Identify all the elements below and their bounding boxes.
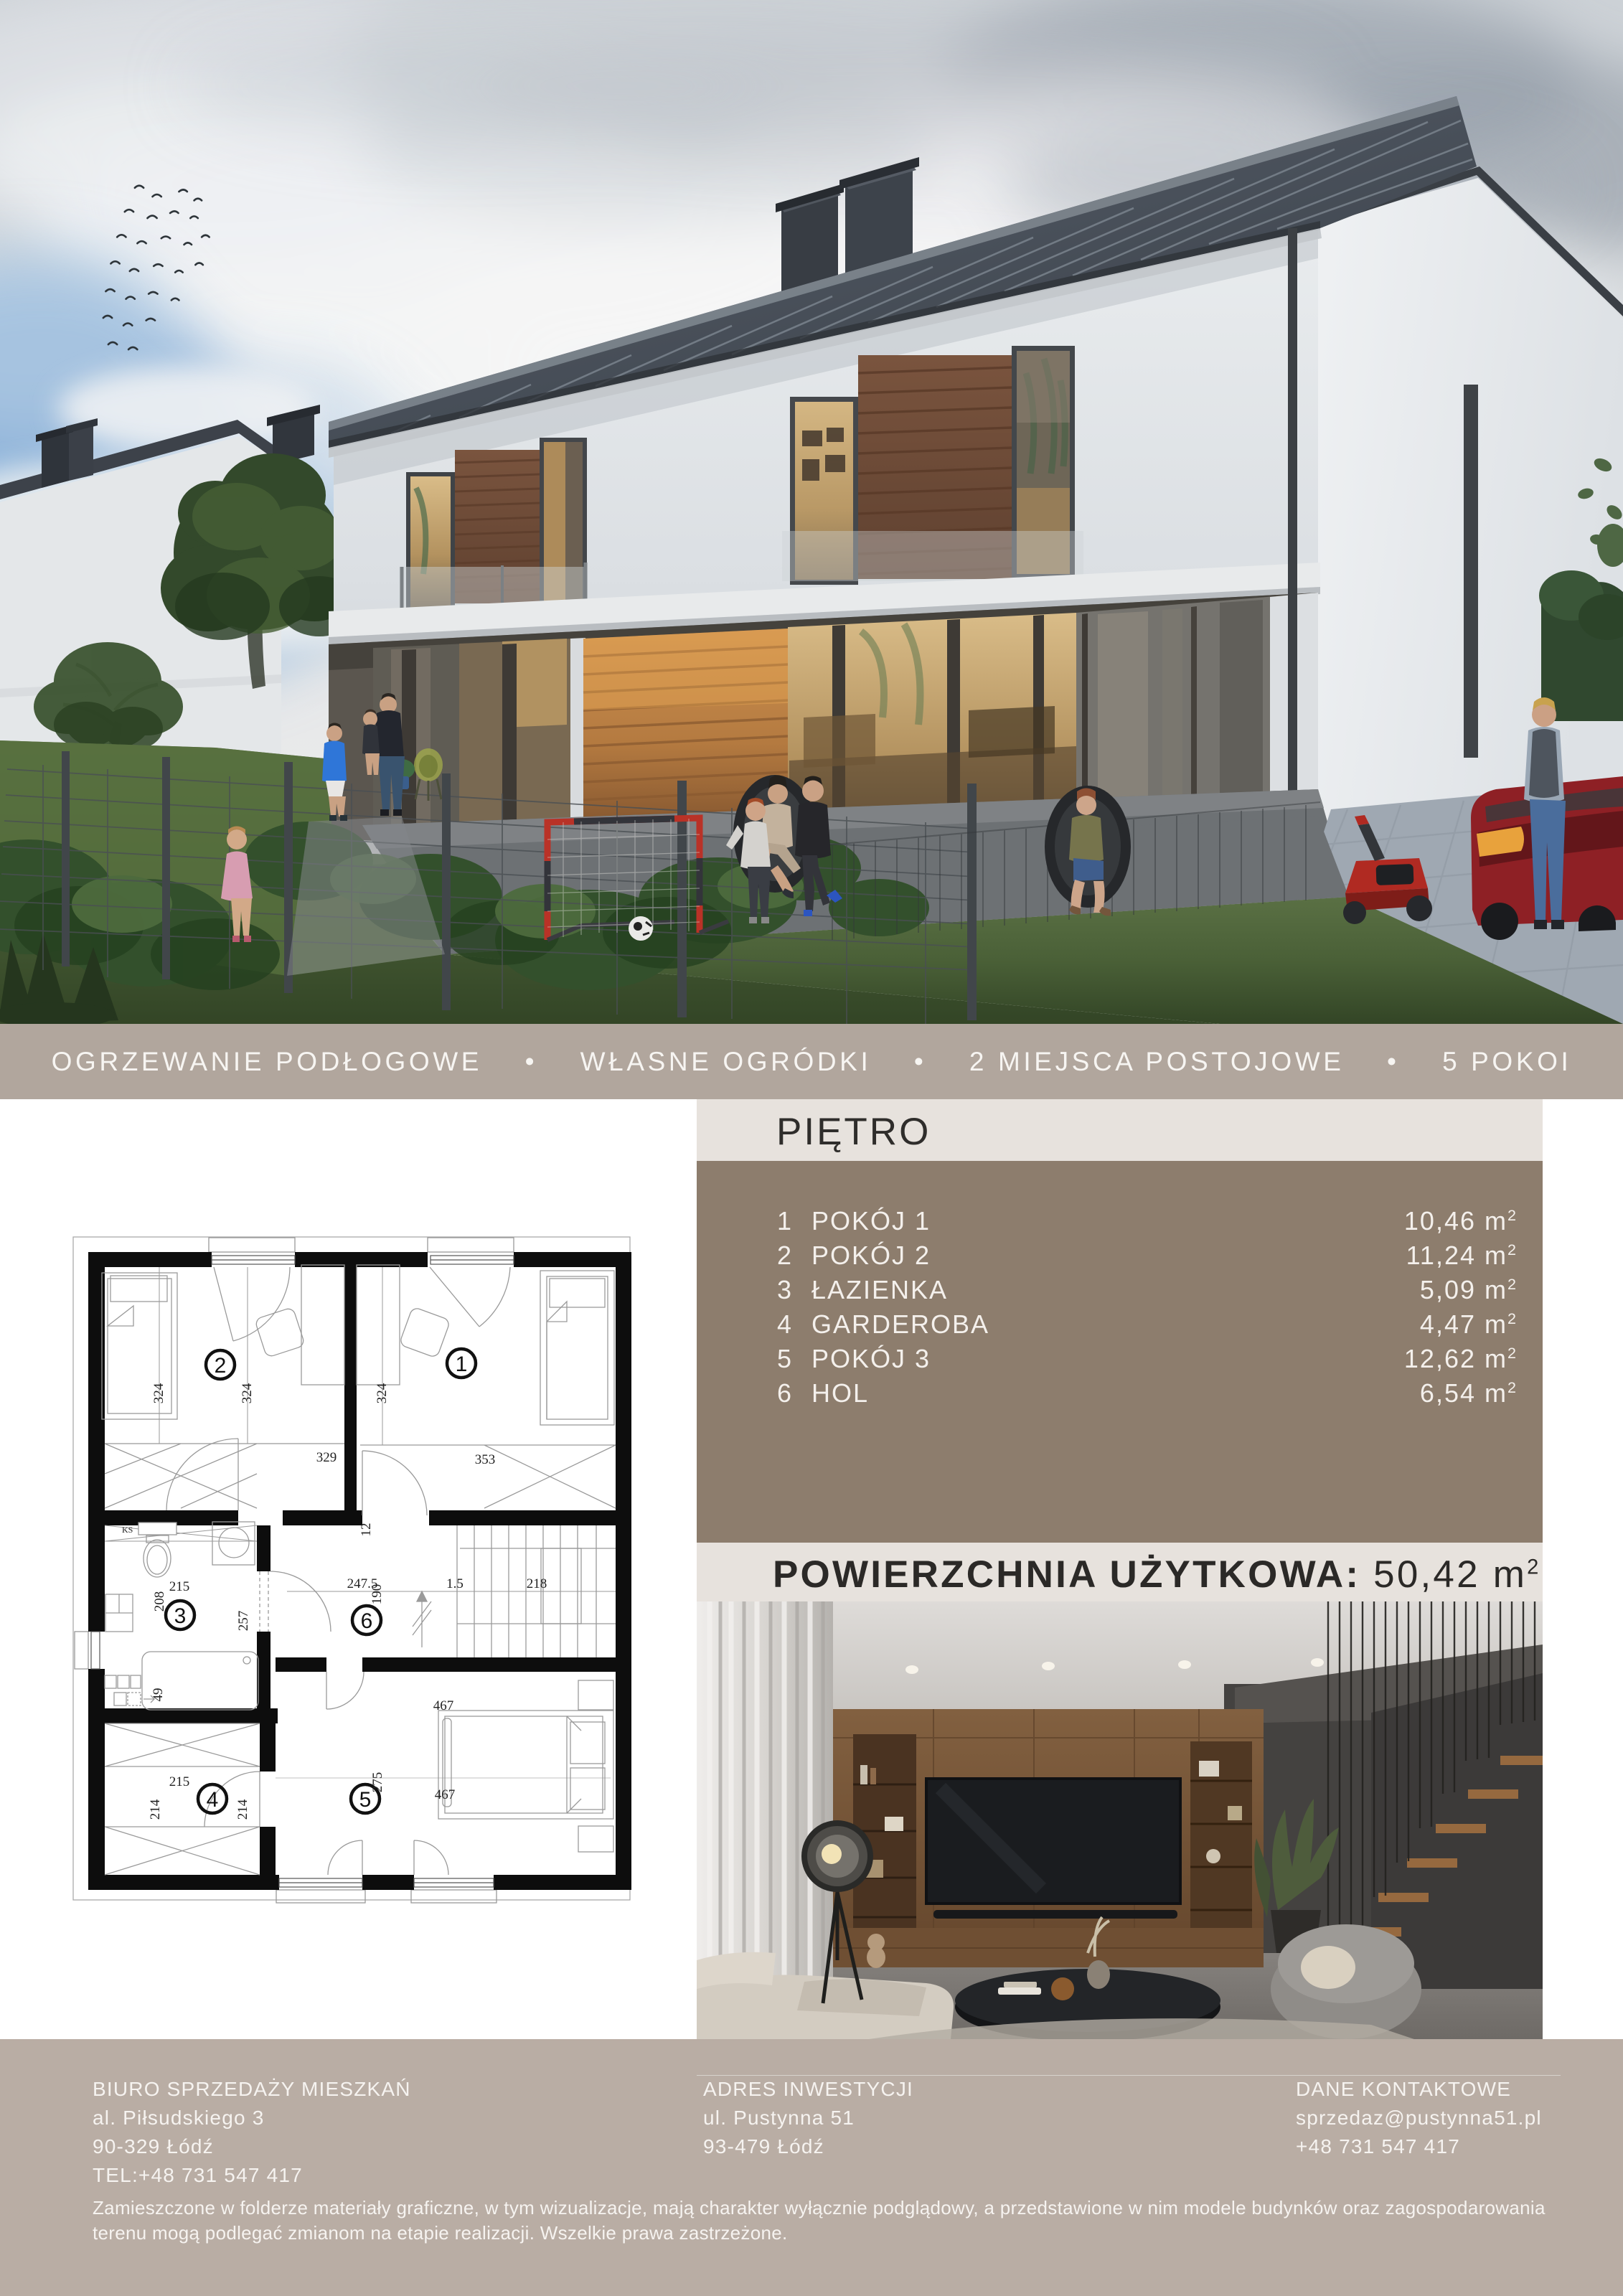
svg-text:275: 275 [370,1772,385,1793]
svg-text:329: 329 [316,1450,337,1465]
svg-text:49: 49 [151,1688,166,1702]
svg-text:467: 467 [433,1698,454,1713]
svg-text:353: 353 [475,1452,496,1467]
svg-text:6: 6 [361,1609,373,1633]
svg-text:5: 5 [359,1788,372,1812]
svg-text:215: 215 [169,1579,190,1594]
svg-text:215: 215 [169,1774,190,1789]
svg-text:218: 218 [527,1576,547,1591]
svg-text:KS: KS [122,1525,133,1535]
svg-text:3: 3 [174,1604,187,1628]
svg-text:12: 12 [359,1523,374,1537]
svg-text:1: 1 [456,1352,468,1376]
svg-text:1.5: 1.5 [446,1576,464,1591]
svg-text:208: 208 [152,1591,167,1612]
svg-text:257: 257 [236,1611,251,1632]
svg-text:214: 214 [235,1799,250,1820]
svg-text:324: 324 [240,1383,255,1403]
svg-text:2: 2 [215,1354,227,1378]
svg-text:467: 467 [435,1787,456,1802]
svg-text:4: 4 [207,1788,219,1812]
svg-text:324: 324 [151,1383,166,1403]
svg-text:190: 190 [370,1584,385,1605]
svg-text:214: 214 [148,1799,163,1820]
svg-text:324: 324 [375,1383,390,1403]
